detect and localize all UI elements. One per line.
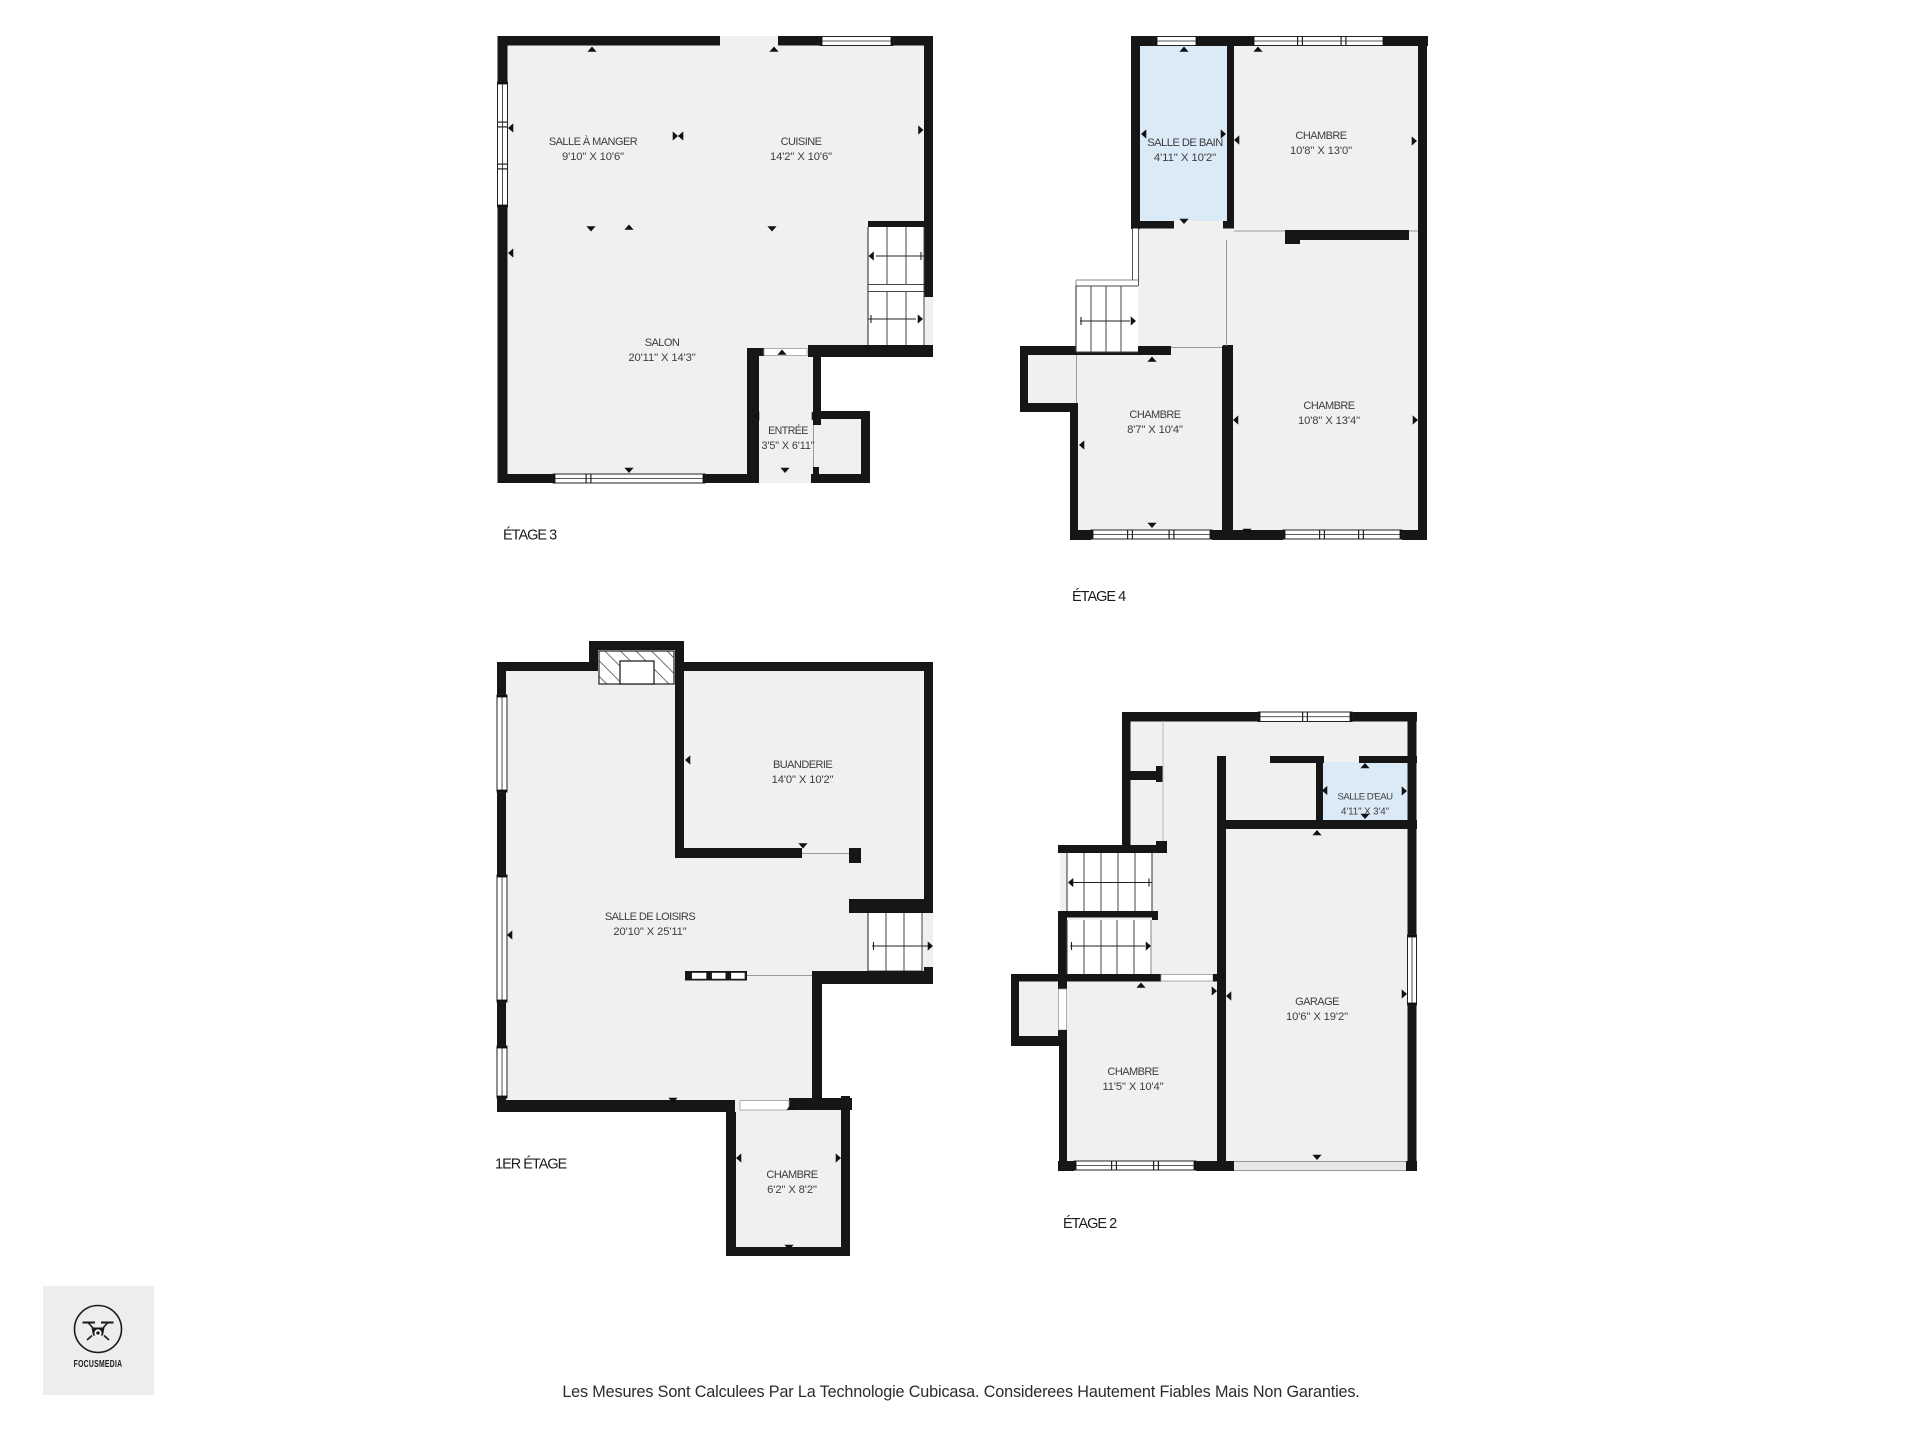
svg-text:CUISINE: CUISINE: [781, 136, 822, 148]
svg-text:20'10" X 25'11": 20'10" X 25'11": [613, 926, 686, 938]
svg-text:20'11" X 14'3": 20'11" X 14'3": [628, 352, 695, 364]
svg-text:CHAMBRE: CHAMBRE: [766, 1169, 817, 1181]
svg-text:14'2" X 10'6": 14'2" X 10'6": [770, 151, 832, 163]
svg-text:9'10" X 10'6": 9'10" X 10'6": [562, 151, 624, 163]
svg-text:11'5" X 10'4": 11'5" X 10'4": [1102, 1081, 1163, 1093]
svg-text:ENTRÉE: ENTRÉE: [768, 424, 808, 437]
svg-text:SALLE DE LOISIRS: SALLE DE LOISIRS: [605, 911, 695, 923]
svg-text:SALLE DE BAIN: SALLE DE BAIN: [1147, 137, 1223, 149]
svg-text:SALLE D'EAU: SALLE D'EAU: [1338, 792, 1394, 803]
svg-text:CHAMBRE: CHAMBRE: [1107, 1066, 1158, 1078]
svg-text:4'11" X 10'2": 4'11" X 10'2": [1154, 152, 1216, 164]
svg-text:10'6" X 19'2": 10'6" X 19'2": [1286, 1011, 1348, 1023]
svg-text:BUANDERIE: BUANDERIE: [773, 759, 832, 771]
svg-text:6'2" X 8'2": 6'2" X 8'2": [767, 1184, 817, 1196]
svg-text:10'8" X 13'4": 10'8" X 13'4": [1298, 415, 1360, 427]
svg-text:ÉTAGE 2: ÉTAGE 2: [1063, 1215, 1117, 1232]
svg-text:ÉTAGE 3: ÉTAGE 3: [503, 527, 557, 544]
svg-text:SALON: SALON: [645, 337, 680, 349]
svg-text:ÉTAGE 4: ÉTAGE 4: [1072, 588, 1126, 605]
svg-text:1ER ÉTAGE: 1ER ÉTAGE: [495, 1156, 568, 1173]
svg-text:SALLE À MANGER: SALLE À MANGER: [549, 135, 638, 148]
svg-text:4'11" X 3'4": 4'11" X 3'4": [1341, 807, 1390, 818]
svg-text:Les Mesures Sont Calculees Par: Les Mesures Sont Calculees Par La Techno…: [562, 1383, 1359, 1401]
svg-text:CHAMBRE: CHAMBRE: [1295, 130, 1346, 142]
svg-text:CHAMBRE: CHAMBRE: [1303, 400, 1354, 412]
svg-text:10'8" X 13'0": 10'8" X 13'0": [1290, 145, 1352, 157]
svg-text:FOCUSMEDIA: FOCUSMEDIA: [74, 1358, 123, 1370]
svg-text:14'0" X 10'2": 14'0" X 10'2": [772, 774, 834, 786]
svg-text:CHAMBRE: CHAMBRE: [1129, 409, 1180, 421]
svg-text:3'5" X 6'11": 3'5" X 6'11": [761, 440, 814, 452]
svg-text:8'7" X 10'4": 8'7" X 10'4": [1127, 424, 1183, 436]
svg-text:GARAGE: GARAGE: [1295, 996, 1339, 1008]
